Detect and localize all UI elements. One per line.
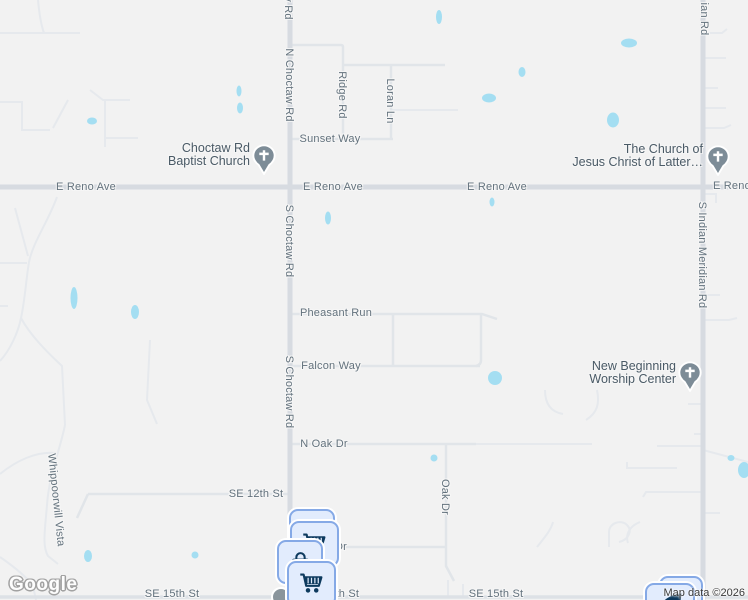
- road-label-s-choctaw-rd: S Choctaw Rd: [283, 205, 295, 278]
- road-label-e-reno-ave: E Reno Ave: [303, 181, 363, 193]
- poi-label-new-beginning-worship-center[interactable]: New Beginning Worship Center: [589, 360, 676, 386]
- pond: [519, 67, 526, 77]
- road-label-se-15th-st: SE 15th St: [469, 588, 524, 600]
- pond: [607, 113, 619, 128]
- road-label-n-choctaw-rd: N Choctaw Rd: [283, 48, 295, 121]
- google-logo[interactable]: Google: [9, 574, 77, 596]
- pond: [131, 305, 139, 319]
- named-minor-roads: [77, 45, 497, 581]
- pond: [325, 212, 331, 225]
- pond: [431, 455, 438, 462]
- pond: [237, 103, 243, 114]
- pond: [237, 86, 242, 97]
- church-pin-icon[interactable]: [251, 144, 277, 175]
- pond: [84, 550, 92, 562]
- road-label-e-reno-ave: E Reno Ave: [56, 181, 116, 193]
- road-label-oak-dr: Oak Dr: [439, 479, 451, 515]
- major-roads: [0, 0, 748, 600]
- pond: [728, 455, 735, 461]
- church-pin-icon[interactable]: [677, 361, 703, 392]
- pond: [621, 39, 637, 48]
- minor-roads: [0, 0, 748, 600]
- ponds-layer: [71, 10, 748, 562]
- church-pin-icon[interactable]: [705, 145, 731, 176]
- pond: [192, 552, 199, 559]
- road-label-se-15th-st: SE 15th St: [145, 588, 200, 600]
- map-canvas[interactable]: E Reno Ave E Reno Ave E Reno Ave E Reno …: [0, 0, 748, 600]
- poi-label-line: Worship Center: [589, 373, 676, 386]
- road-label-ridge-rd: Ridge Rd: [336, 71, 348, 118]
- pond: [71, 287, 78, 309]
- pond: [482, 94, 496, 103]
- road-label-pheasant-run: Pheasant Run: [300, 307, 372, 319]
- road-label-s-choctaw-rd: S Choctaw Rd: [283, 356, 295, 429]
- road-label-loran-ln: Loran Ln: [384, 78, 396, 123]
- road-label-s-indian-meridian-rd: S Indian Meridian Rd: [696, 202, 708, 309]
- road-label-e-reno-ave: E Reno Ave: [467, 181, 527, 193]
- road-label-meridian-fragment: ian Rd: [698, 3, 710, 36]
- road-label-sunset-way: Sunset Way: [300, 133, 361, 145]
- road-label-n-oak-dr: N Oak Dr: [300, 438, 347, 450]
- pond: [436, 10, 442, 24]
- shopping-cart-icon: [298, 571, 325, 598]
- poi-label-line: Baptist Church: [168, 155, 250, 168]
- pond: [490, 198, 495, 207]
- roads-layer: [0, 0, 748, 600]
- poi-label-line: Jesus Christ of Latter…: [572, 156, 703, 169]
- pond: [738, 462, 748, 478]
- road-label-falcon-way: Falcon Way: [301, 360, 361, 372]
- poi-label-choctaw-rd-baptist-church[interactable]: Choctaw Rd Baptist Church: [168, 142, 250, 168]
- map-data-attribution: Map data ©2026: [664, 587, 746, 599]
- pond: [87, 118, 97, 125]
- road-label-se-12th-st: SE 12th St: [229, 488, 284, 500]
- pond: [488, 371, 502, 385]
- store-badge[interactable]: [287, 561, 336, 600]
- road-label-rd-fragment: y Rd: [282, 0, 294, 20]
- poi-label-lds-church[interactable]: The Church of Jesus Christ of Latter…: [572, 143, 703, 169]
- road-label-e-reno-partial: E Reno: [713, 180, 748, 192]
